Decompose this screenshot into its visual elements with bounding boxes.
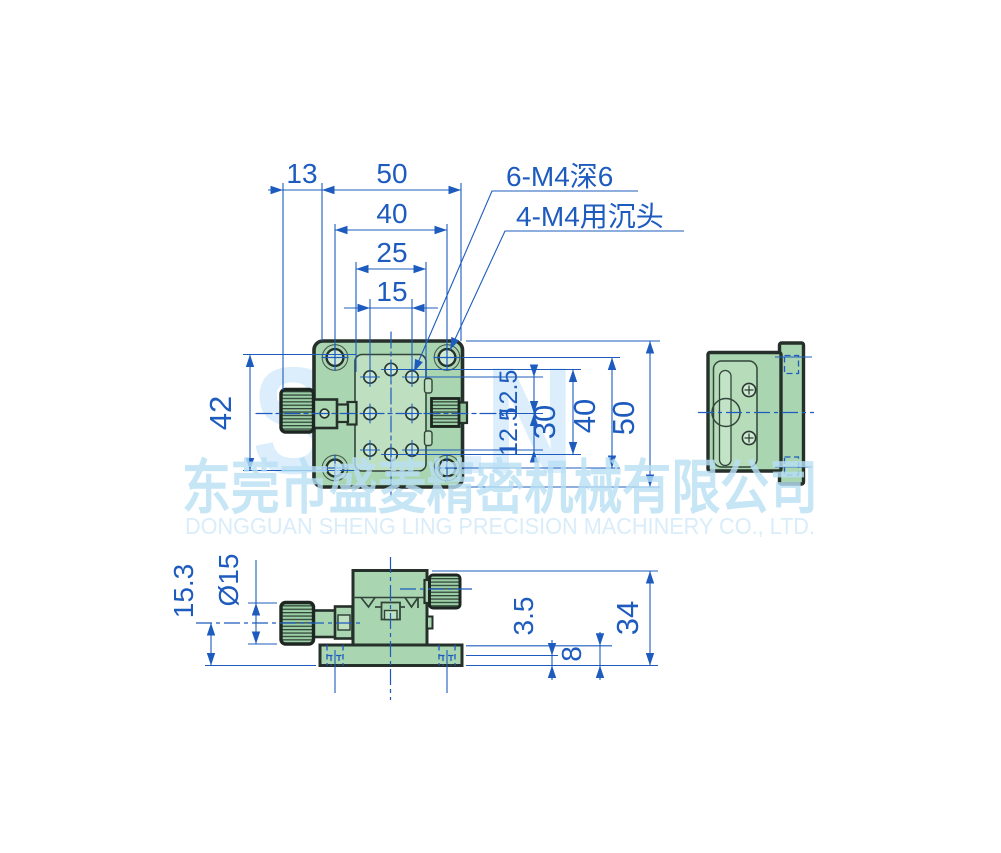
dim-dia-15: Ø15 [213,554,244,607]
clamp-screw-top-view [432,399,468,427]
dim-15-3: 15.3 [168,564,199,619]
dim-25: 25 [376,237,407,268]
clamp-knurl-front [430,575,461,608]
dim-15: 15 [376,276,407,307]
plate-tab-upper [425,379,433,394]
clamp-knurl [432,399,460,427]
dim-34: 34 [610,601,645,635]
note-thread: 6-M4深6 [506,161,613,192]
engineering-drawing-canvas: SFLN [0,0,1001,853]
knob-shaft-front [314,611,336,638]
side-slot [720,371,732,466]
side-tab-front [427,617,433,629]
plate-tab-lower [425,431,433,446]
knurled-knob [281,390,314,433]
dim-30: 30 [527,405,562,439]
drawing-svg: SFLN [0,0,1001,853]
dim-12-5-lower: 12.5 [495,407,523,456]
company-name-en: DONGGUAN SHENG LING PRECISION MACHINERY … [185,513,815,539]
company-watermark: 东莞市盛菱精密机械有限公司 DONGGUAN SHENG LING PRECIS… [182,455,818,539]
note-counterbore: 4-M4用沉头 [516,201,664,232]
dim-3-5: 3.5 [508,597,539,636]
dim-13: 13 [286,158,317,189]
side-screw [742,431,755,444]
dim-42: 42 [203,396,238,430]
dim-50-width: 50 [376,158,407,189]
company-name-cn: 东莞市盛菱精密机械有限公司 [182,455,818,521]
clamp-knob-front-view [425,575,461,629]
dim-8: 8 [556,646,587,662]
leader-counterbore-note [450,231,684,350]
side-screw [742,383,755,396]
dim-40-rows: 40 [567,399,602,433]
dim-50-depth: 50 [606,401,641,435]
dim-40-width: 40 [376,198,407,229]
